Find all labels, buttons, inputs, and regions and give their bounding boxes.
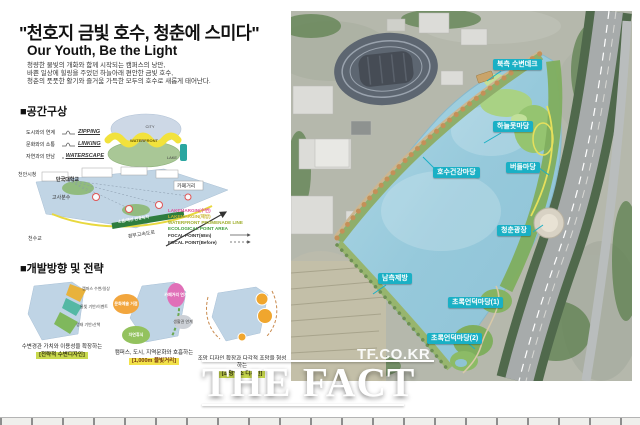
map-label-health-yard: 호수건강마당 [433, 167, 480, 178]
concept-row-culture: 문화와의 소통 LINKING [26, 138, 104, 150]
map-label-green-hill-1: 초록언덕마당(1) [448, 297, 503, 308]
map-label-willow-yard: 버들마당 [506, 162, 540, 173]
bottom-strip [0, 414, 640, 425]
concept-blob-diagram: CITY WATERFRONT LAKE [98, 108, 190, 170]
lake-blob-label: LAKE [167, 155, 178, 160]
logo-wordmark: THE FACT [202, 362, 464, 402]
masterplan-map: 북측 수변데크 하늘못마당 버들마당 호수건강마당 청춘광장 남측제방 초록언덕… [291, 11, 632, 381]
squiggle-icon [62, 152, 64, 160]
city-blob-label: CITY [145, 124, 154, 129]
map-label-north-deck: 북측 수변데크 [493, 59, 542, 70]
section-heading-space-concept: ■공간구상 [20, 103, 67, 119]
map-label-sky-pond: 하늘못마당 [493, 121, 533, 132]
caption-highlight: [1,000m 물빛거리] [129, 358, 179, 365]
zone-label: 생활권 연계 [173, 318, 193, 324]
zone-label: 문화예술 거점 [114, 300, 138, 306]
caption-highlight: [전략적 수변디자인] [36, 352, 88, 359]
strategy-diagram-1: 캠퍼스 수변/일상 물빛 기반/이벤트 생태 기반/산책 [20, 280, 110, 344]
caption-text: 수변경관 가치와 이용성을 확장하는 [16, 344, 108, 351]
strategy-caption-1: 수변경관 가치와 이용성을 확장하는 [전략적 수변디자인] [16, 344, 108, 359]
intro-line-3: 청춘의 풋풋한 활기와 즐거움 가득한 모두의 호수로 새롭게 태어난다. [27, 78, 211, 86]
teal-accent [180, 144, 187, 161]
squiggle-icon [62, 140, 76, 148]
university-label: 단국대학교 [56, 176, 79, 183]
zone-label: 자연휴식 [129, 331, 144, 337]
concept-keyword-list: 도시와의 연계 ZIPPING 문화와의 소통 LINKING 자연과의 만남 … [26, 126, 104, 162]
cafe-label: 카페거리 [177, 183, 195, 190]
article-image: "천호지 금빛 호수, 청춘에 스미다" Our Youth, Be the L… [0, 0, 640, 425]
page-subtitle: Our Youth, Be the Light [27, 43, 177, 58]
strip-ticks [0, 417, 640, 425]
zone-label: 캠퍼스 수변/일상 [82, 285, 110, 291]
section-heading-strategy: ■개발방향 및 전략 [20, 260, 104, 276]
legend-item: ECOLOGICAL POINT AREA [168, 226, 229, 231]
page-title: "천호지 금빛 호수, 청춘에 스미다" [19, 20, 259, 45]
zone-label: 생태 기반/산책 [76, 321, 101, 327]
viewpoint-node [256, 293, 268, 305]
aerial-map-image [291, 11, 632, 381]
cityhall-label: 천안시청 [18, 171, 36, 178]
concept-row-nature: 자연과의 만남 WATERSCAPE [26, 150, 104, 162]
intro-paragraph: 청량한 물빛의 개화와 함께 시작되는 캠퍼스의 낭만, 바쁜 일상에 힐링을 … [27, 62, 211, 86]
fountain-label: 고사분수 [52, 194, 71, 201]
zone-label: 물빛 기반/이벤트 [80, 303, 108, 309]
expressway-label: 경부고속도로 [127, 229, 156, 240]
map-label-green-hill-2: 초록언덕마당(2) [427, 333, 482, 344]
viewpoint-node [258, 309, 273, 324]
intro-line-1: 청량한 물빛의 개화와 함께 시작되는 캠퍼스의 낭만, [27, 62, 211, 70]
strategy-diagram-2: 문화예술 거점 카페거리 연계 생활권 연계 자연휴식 [112, 278, 198, 348]
zone-label: 카페거리 연계 [164, 291, 188, 297]
strategy-caption-2: 캠퍼스, 도시, 지역문화와 호흡하는 [1,000m 물빛거리] [108, 350, 200, 365]
round-plaza [534, 208, 564, 238]
site-axonometric-diagram: 소음/매연 완충녹지 경부고속도로 천안시청 단국대학교 고사분수 카페거리 천… [16, 166, 256, 258]
legend-item: FOCAL POINT(Before) [168, 240, 217, 245]
intro-line-2: 바쁜 일상에 힐링을 주었던 하늘아래 편안한 금빛 호수, [27, 70, 211, 78]
site-legend: LAKEMARGIN(수변) LAKEMARGIN(제방) WATERFRONT… [168, 207, 250, 245]
map-label-south-embankment: 남측제방 [378, 273, 412, 284]
strategy-diagram-3 [202, 283, 284, 345]
squiggle-icon [62, 128, 76, 136]
green-patch [62, 181, 94, 195]
legend-item: LAKEMARGIN(제방) [168, 213, 211, 220]
waterfront-band-label: WATERFRONT [130, 138, 158, 143]
legend-item: FOCAL POINT(68m) [168, 233, 212, 238]
viewpoint-node [238, 333, 246, 341]
map-label-youth-plaza: 청춘광장 [497, 225, 531, 236]
concept-row-city: 도시와의 연계 ZIPPING [26, 126, 104, 138]
thefact-logo: THE FACT [202, 360, 464, 406]
bridge-label: 천수교 [28, 235, 42, 242]
concept-row-label: 자연과의 만남 [26, 153, 62, 160]
concept-row-label: 문화와의 소통 [26, 141, 62, 148]
concept-row-label: 도시와의 연계 [26, 129, 62, 136]
concept-row-keyword: ZIPPING [78, 129, 100, 135]
caption-text: 캠퍼스, 도시, 지역문화와 호흡하는 [108, 350, 200, 357]
legend-item: WATERFRONT PROMENADE LINE [168, 220, 243, 225]
lake-blob [108, 141, 180, 167]
legend-item: LAKEMARGIN(수변) [168, 207, 211, 214]
